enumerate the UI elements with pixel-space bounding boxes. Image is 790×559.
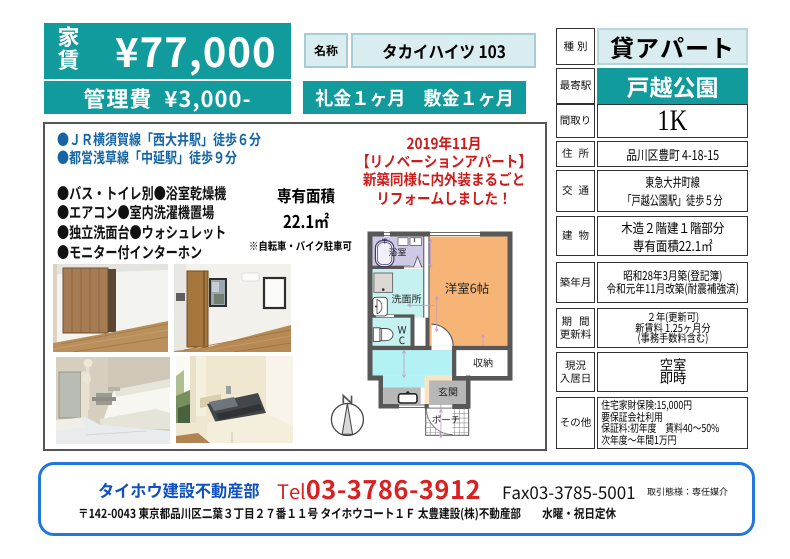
svg-text:ポーチ: ポーチ <box>432 412 461 426</box>
svg-text:玄関: 玄関 <box>438 384 458 399</box>
svg-text:浴室: 浴室 <box>388 246 406 259</box>
svg-text:洗面所: 洗面所 <box>392 291 422 306</box>
svg-text:洋室6帖: 洋室6帖 <box>445 278 489 297</box>
svg-text:C: C <box>399 332 406 347</box>
svg-text:収納: 収納 <box>473 355 493 370</box>
